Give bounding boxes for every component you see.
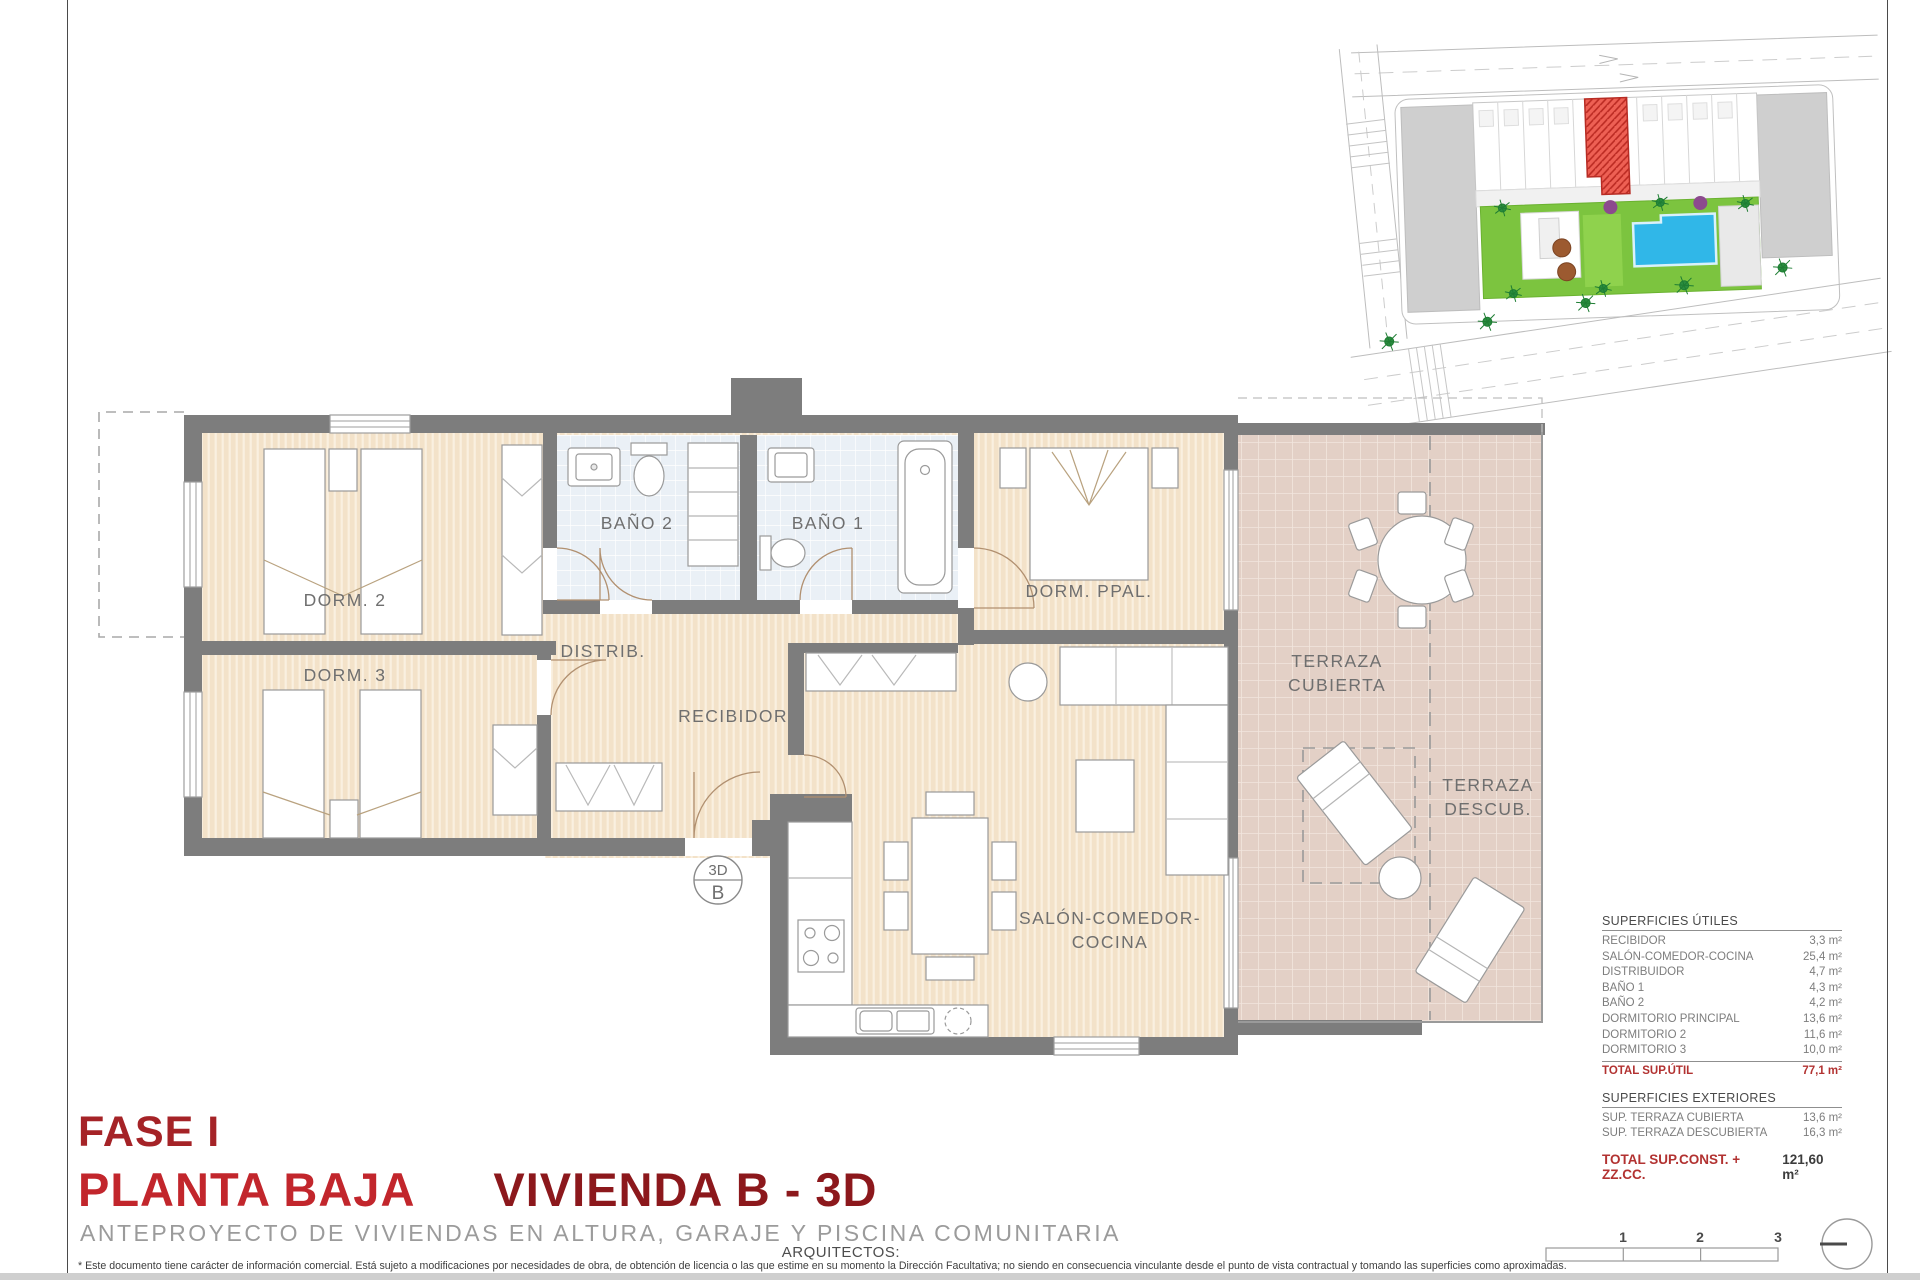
label-dorm-ppal: DORM. PPAL. bbox=[1026, 581, 1153, 601]
architects-label: ARQUITECTOS: bbox=[640, 1244, 900, 1261]
label-bano1: BAÑO 1 bbox=[792, 512, 865, 533]
site-plan bbox=[1333, 35, 1891, 430]
table-row: DISTRIBUIDOR4,7 m² bbox=[1602, 965, 1842, 981]
label-terraza-desc-2: DESCUB. bbox=[1444, 799, 1532, 819]
scale-tick-1: 1 bbox=[1619, 1229, 1627, 1245]
neighbor-terrace-dashed bbox=[99, 412, 184, 637]
disclaimer-text: * Este documento tiene carácter de infor… bbox=[78, 1260, 1568, 1272]
salon-wardrobe bbox=[806, 653, 956, 691]
label-dorm3: DORM. 3 bbox=[304, 665, 387, 685]
floor-title-row: PLANTA BAJAVIVIENDA B - 3D bbox=[78, 1162, 877, 1217]
terrace-side-table bbox=[1379, 857, 1421, 899]
phase-title: FASE I bbox=[78, 1108, 220, 1157]
project-subtitle: ANTEPROYECTO DE VIVIENDAS EN ALTURA, GAR… bbox=[80, 1220, 1121, 1247]
bath2-shower-column bbox=[688, 443, 738, 566]
plan-sheet: DORM. 2 DORM. 3 BAÑO 2 BAÑO 1 DORM. PPAL… bbox=[0, 0, 1920, 1280]
table-row: DORMITORIO 310,0 m² bbox=[1602, 1043, 1842, 1059]
label-terraza-desc-1: TERRAZA bbox=[1442, 775, 1533, 795]
exterior-areas-header: SUPERFICIES EXTERIORES bbox=[1602, 1091, 1842, 1108]
view-marker-bottom: B bbox=[712, 883, 725, 904]
floor-title: PLANTA BAJA bbox=[78, 1163, 415, 1216]
view-marker-top: 3D bbox=[708, 862, 727, 879]
unit-title: VIVIENDA B - 3D bbox=[493, 1163, 877, 1216]
dorm3-closet bbox=[493, 725, 537, 815]
table-row: SALÓN-COMEDOR-COCINA25,4 m² bbox=[1602, 950, 1842, 966]
dorm2-closet bbox=[502, 445, 542, 635]
areas-table: SUPERFICIES ÚTILES RECIBIDOR3,3 m² SALÓN… bbox=[1602, 914, 1842, 1182]
sheet-bottom-strip bbox=[0, 1273, 1920, 1280]
table-row: DORMITORIO 211,6 m² bbox=[1602, 1028, 1842, 1044]
floor-plan: DORM. 2 DORM. 3 BAÑO 2 BAÑO 1 DORM. PPAL… bbox=[99, 378, 1545, 1055]
site-building-left bbox=[1401, 105, 1480, 312]
table-row: BAÑO 24,2 m² bbox=[1602, 996, 1842, 1012]
label-distrib: DISTRIB. bbox=[560, 641, 645, 661]
label-terraza-cub-2: CUBIERTA bbox=[1288, 675, 1386, 695]
table-row: RECIBIDOR3,3 m² bbox=[1602, 934, 1842, 950]
entry-closet bbox=[556, 763, 662, 811]
label-dorm2: DORM. 2 bbox=[304, 590, 387, 610]
label-salon-2: COCINA bbox=[1072, 932, 1148, 952]
table-row: SUP. TERRAZA DESCUBIERTA16,3 m² bbox=[1602, 1126, 1842, 1142]
label-terraza-cub-1: TERRAZA bbox=[1291, 651, 1382, 671]
label-recibidor: RECIBIDOR bbox=[678, 706, 788, 726]
sheet-border-left bbox=[67, 0, 68, 1280]
label-salon-1: SALÓN-COMEDOR- bbox=[1019, 907, 1201, 928]
terrace-slider-dorm bbox=[1224, 470, 1238, 610]
site-building-right bbox=[1757, 93, 1833, 258]
useful-total-row: TOTAL SUP.ÚTIL77,1 m² bbox=[1602, 1061, 1842, 1077]
useful-areas-header: SUPERFICIES ÚTILES bbox=[1602, 914, 1842, 931]
table-row: DORMITORIO PRINCIPAL13,6 m² bbox=[1602, 1012, 1842, 1028]
scale-tick-3: 3 bbox=[1774, 1229, 1782, 1245]
label-bano2: BAÑO 2 bbox=[601, 512, 674, 533]
view-marker: 3D B bbox=[694, 856, 742, 904]
orientation-icon bbox=[1820, 1219, 1872, 1269]
side-table bbox=[1009, 663, 1047, 701]
table-row: BAÑO 14,3 m² bbox=[1602, 981, 1842, 997]
sheet-border-right bbox=[1887, 0, 1888, 1280]
site-parcel bbox=[1395, 84, 1841, 324]
terrace-slider-salon bbox=[1224, 858, 1238, 1008]
scale-tick-2: 2 bbox=[1696, 1229, 1704, 1245]
site-garden bbox=[1480, 194, 1761, 299]
table-row: SUP. TERRAZA CUBIERTA13,6 m² bbox=[1602, 1111, 1842, 1127]
scale-bar: 1 2 3 bbox=[1546, 1219, 1872, 1269]
grand-total-row: TOTAL SUP.CONST. + ZZ.CC. 121,60 m² bbox=[1602, 1152, 1842, 1182]
